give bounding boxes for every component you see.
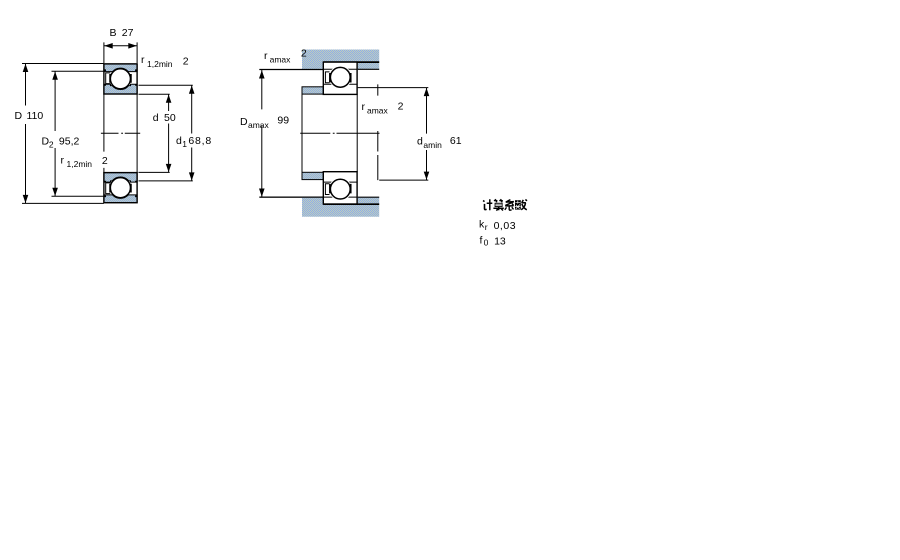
svg-text:r: r xyxy=(264,50,268,62)
svg-text:r: r xyxy=(485,222,488,232)
svg-text:D: D xyxy=(15,110,23,122)
svg-text:61: 61 xyxy=(450,135,462,147)
svg-text:r: r xyxy=(61,155,65,167)
svg-text:2: 2 xyxy=(49,140,54,150)
svg-text:d: d xyxy=(417,136,423,148)
svg-text:2: 2 xyxy=(183,55,189,67)
svg-text:1,2min: 1,2min xyxy=(67,159,93,169)
svg-text:r: r xyxy=(141,54,145,66)
svg-text:f: f xyxy=(480,235,483,247)
svg-text:2: 2 xyxy=(301,48,307,60)
svg-text:r: r xyxy=(362,101,366,113)
svg-text:68,8: 68,8 xyxy=(188,135,212,147)
svg-text:d: d xyxy=(176,135,182,147)
svg-text:0: 0 xyxy=(484,238,489,248)
svg-text:50: 50 xyxy=(164,112,176,124)
svg-text:B: B xyxy=(110,27,117,39)
svg-text:110: 110 xyxy=(27,110,44,122)
svg-text:2: 2 xyxy=(102,155,108,167)
svg-text:2: 2 xyxy=(398,100,404,112)
svg-text:13: 13 xyxy=(494,236,506,248)
svg-text:amax: amax xyxy=(248,120,270,130)
svg-text:amax: amax xyxy=(270,55,292,65)
svg-text:D: D xyxy=(240,116,248,128)
svg-text:1,2min: 1,2min xyxy=(147,59,173,69)
svg-text:27: 27 xyxy=(122,27,134,39)
svg-text:amin: amin xyxy=(423,140,442,150)
svg-text:0,03: 0,03 xyxy=(494,220,516,232)
svg-text:1: 1 xyxy=(182,139,187,149)
svg-text:99: 99 xyxy=(277,114,289,126)
svg-text:d: d xyxy=(153,112,159,124)
svg-text:95,2: 95,2 xyxy=(59,136,80,148)
svg-text:amax: amax xyxy=(367,105,389,115)
